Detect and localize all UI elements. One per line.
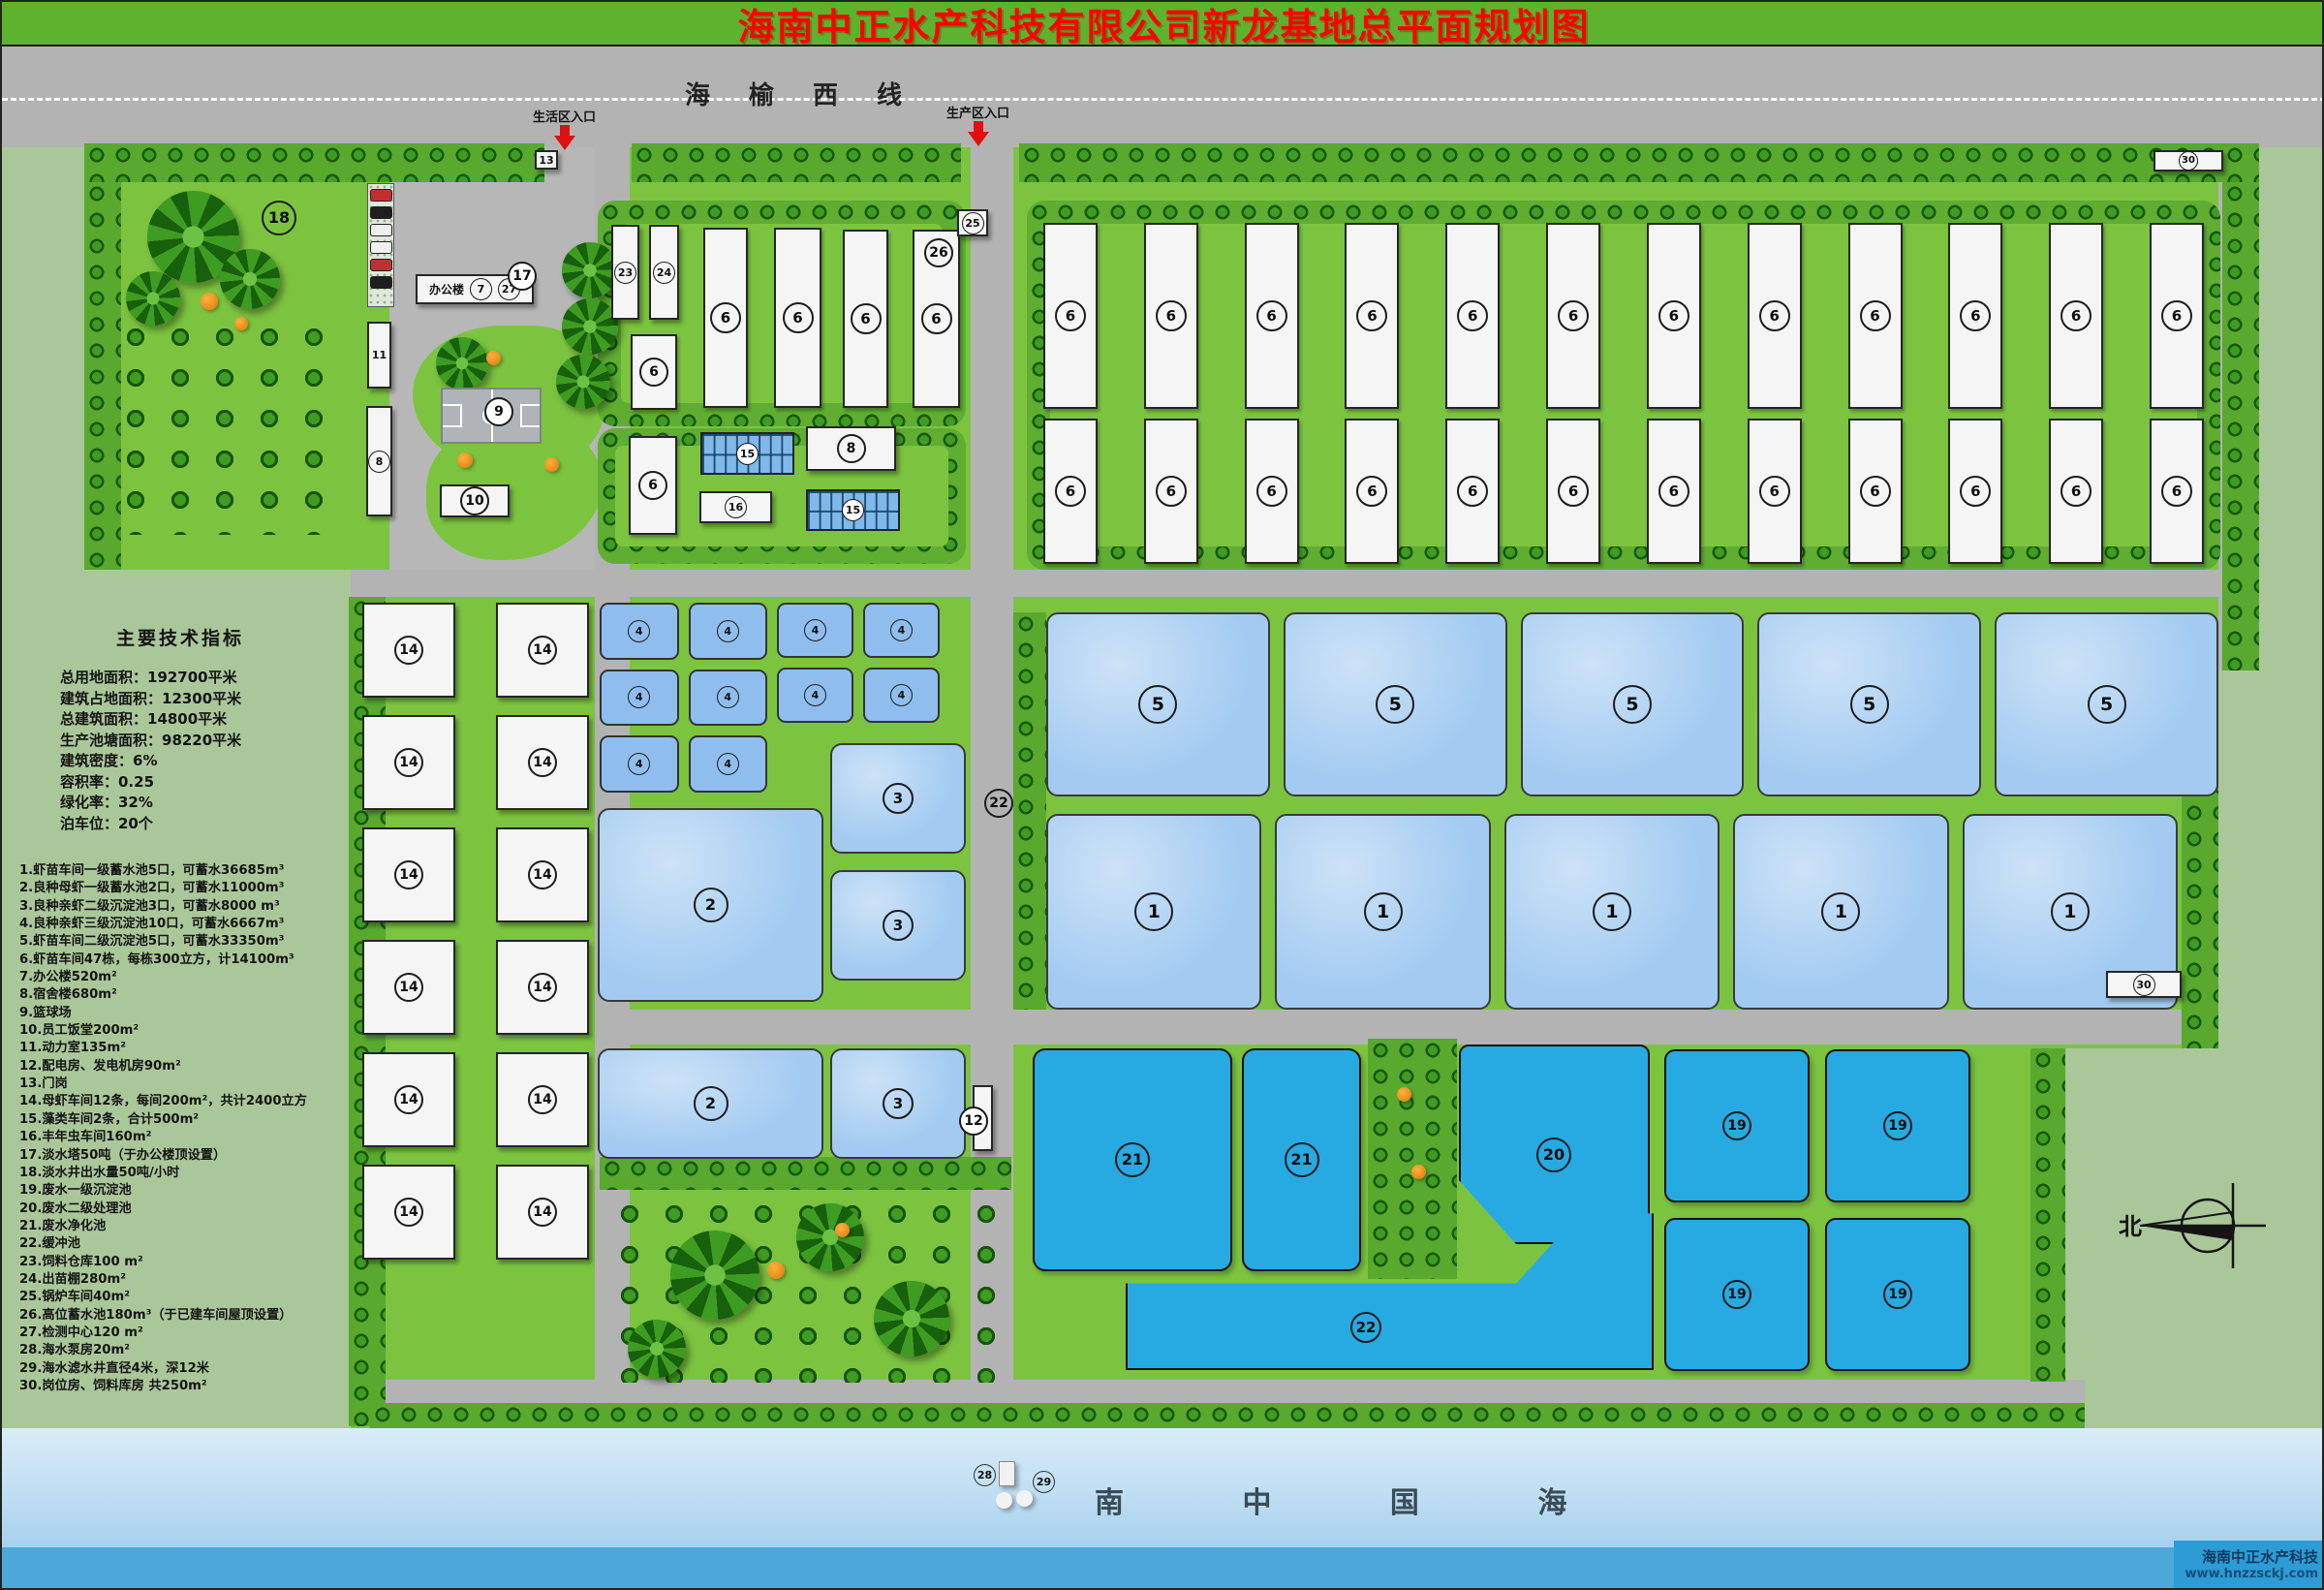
pond-label: 4 bbox=[804, 684, 826, 706]
gate-house-13: 13 bbox=[535, 150, 558, 170]
pond-label: 4 bbox=[890, 684, 913, 706]
pond-label: 5 bbox=[2088, 685, 2126, 724]
workshop-14-label: 14 bbox=[394, 973, 423, 1002]
flower-icon bbox=[544, 457, 559, 472]
workshop-14-label: 14 bbox=[528, 1085, 557, 1114]
shed-label: 6 bbox=[1256, 300, 1287, 331]
workshop-14-building: 14 bbox=[362, 715, 455, 810]
workshop-14-building: 14 bbox=[496, 940, 589, 1035]
sedimentation-pond-5: 5 bbox=[1046, 612, 1270, 796]
workshop-14-label: 14 bbox=[394, 748, 423, 777]
marker-8: 8 bbox=[368, 451, 390, 473]
palm-tree-icon bbox=[562, 242, 618, 298]
shed-building: 6 bbox=[1848, 223, 1903, 409]
down-arrow-icon bbox=[974, 121, 983, 132]
shed-label: 6 bbox=[2161, 300, 2192, 331]
shed-label: 6 bbox=[1558, 476, 1589, 507]
boiler-room-25: 25 bbox=[957, 209, 988, 236]
indicator-line: 生产池塘面积：98220平米 bbox=[60, 731, 244, 752]
legend-line: 21.废水净化池 bbox=[19, 1218, 307, 1235]
pond-label: 19 bbox=[1722, 1111, 1751, 1140]
marker-29-filter-wells: 29 bbox=[1033, 1471, 1055, 1493]
pond-label: 4 bbox=[717, 753, 739, 775]
filter-well-icon bbox=[1016, 1490, 1033, 1507]
storage-pond-2: 2 bbox=[598, 808, 823, 1002]
sedimentation-pond-4: 4 bbox=[600, 603, 679, 660]
shed-building: 6 bbox=[1647, 419, 1701, 564]
shed-label: 6 bbox=[2061, 300, 2092, 331]
shed-label: 6 bbox=[1759, 476, 1790, 507]
sedimentation-pond-4: 4 bbox=[777, 603, 853, 658]
pond-label: 1 bbox=[1821, 892, 1860, 931]
pond-grid-4b: 4444 bbox=[777, 603, 940, 723]
sedimentation-pond-5: 5 bbox=[1995, 612, 2218, 796]
shed-building: 6 bbox=[1445, 223, 1500, 409]
indicator-line: 总建筑面积：14800平米 bbox=[60, 709, 244, 731]
legend-line: 18.淡水井出水量50吨/小时 bbox=[19, 1165, 307, 1182]
legend-line: 1.虾苗车间一级蓄水池5口，可蓄水36685m³ bbox=[19, 862, 307, 880]
pond-label: 4 bbox=[804, 619, 826, 641]
shed-label: 6 bbox=[1658, 476, 1689, 507]
tree-strip-icon bbox=[1368, 1039, 1457, 1279]
palm-tree-icon bbox=[796, 1203, 864, 1271]
indicators-title: 主要技术指标 bbox=[116, 624, 244, 650]
legend-line: 23.饲料仓库100 m² bbox=[19, 1254, 307, 1271]
algae-pond-15: 15 bbox=[700, 432, 794, 475]
shed-label: 6 bbox=[1156, 476, 1187, 507]
shed-building: 6 bbox=[1546, 223, 1600, 409]
shed-building: 6 bbox=[1848, 419, 1903, 564]
indicator-line: 总用地面积：192700平米 bbox=[60, 668, 244, 689]
algae-pond-15: 15 bbox=[806, 489, 900, 531]
storage-pond-1: 1 bbox=[1046, 814, 1261, 1010]
pond-label: 5 bbox=[1376, 685, 1414, 724]
shrimp-shed-row-1: 666666666666 bbox=[1043, 223, 2204, 409]
legend-line: 14.母虾车间12条，每间200m²，共计2400立方 bbox=[19, 1093, 307, 1110]
shrimp-shed-row-2: 666666666666 bbox=[1043, 419, 2204, 564]
tree-row-icon bbox=[2222, 182, 2259, 670]
pond-label: 4 bbox=[628, 753, 650, 775]
power-house-11: 11 bbox=[367, 322, 391, 389]
shed-label: 6 bbox=[1960, 476, 1991, 507]
marker-30: 30 bbox=[2179, 151, 2198, 171]
pond-label: 4 bbox=[890, 619, 913, 641]
pond-label: 1 bbox=[1593, 892, 1631, 931]
tree-row-icon bbox=[2030, 1048, 2065, 1382]
legend-line: 9.篮球场 bbox=[19, 1005, 307, 1022]
seedling-shed-24: 24 bbox=[649, 225, 679, 320]
shed-building: 6 bbox=[1445, 419, 1500, 564]
pond-label: 19 bbox=[1883, 1111, 1912, 1140]
shed-building: 6 bbox=[1546, 419, 1600, 564]
shed-building: 6 bbox=[1647, 223, 1701, 409]
palm-tree-icon bbox=[220, 249, 280, 309]
palm-tree-icon bbox=[628, 1320, 686, 1378]
shed-label: 6 bbox=[710, 302, 741, 333]
sedimentation-pond-5: 5 bbox=[1521, 612, 1745, 796]
pond-label: 2 bbox=[694, 888, 728, 922]
sedimentation-pond-3: 3 bbox=[830, 870, 966, 981]
workshop-14-building: 14 bbox=[496, 1165, 589, 1260]
down-arrow-icon bbox=[968, 132, 989, 146]
sedimentation-pond-4: 4 bbox=[689, 735, 768, 793]
workshop-14-label: 14 bbox=[394, 860, 423, 889]
legend-line: 16.丰年虫车间160m² bbox=[19, 1129, 307, 1146]
legend-line: 30.岗位房、饲料库房 共250m² bbox=[19, 1378, 307, 1395]
car-icon bbox=[370, 276, 392, 289]
sedimentation-pond-5: 5 bbox=[1757, 612, 1981, 796]
shed-label: 6 bbox=[1558, 300, 1589, 331]
marker-28-pump-house: 28 bbox=[974, 1464, 996, 1486]
tree-row-icon bbox=[1019, 143, 2259, 182]
down-arrow-icon bbox=[554, 136, 575, 150]
shed-building: 6 bbox=[1345, 223, 1399, 409]
living-entrance-label: 生活区入口 bbox=[533, 107, 596, 125]
workshop-14-label: 14 bbox=[394, 636, 423, 665]
workshop-14-building: 14 bbox=[362, 827, 455, 922]
storage-pond-2: 2 bbox=[598, 1048, 823, 1159]
palm-tree-icon bbox=[556, 355, 610, 409]
marker-7-office: 7 bbox=[470, 278, 492, 300]
legend-line: 22.缓冲池 bbox=[19, 1235, 307, 1253]
shed-label: 6 bbox=[2161, 476, 2192, 507]
marker-15: 15 bbox=[842, 499, 864, 521]
shed-building: 6 bbox=[1245, 223, 1299, 409]
legend-line: 26.高位蓄水池180m³（于已建车间屋顶设置） bbox=[19, 1307, 307, 1325]
legend-line: 4.良种亲虾三级沉淀池10口，可蓄水6667m³ bbox=[19, 916, 307, 933]
shed-building: 6 bbox=[2150, 223, 2204, 409]
car-icon bbox=[370, 259, 392, 271]
pond-label: 5 bbox=[1138, 685, 1177, 724]
tree-row-icon bbox=[632, 143, 961, 182]
shed-label: 6 bbox=[783, 302, 814, 333]
pond-label: 3 bbox=[883, 783, 914, 814]
legend-line: 2.良种母虾一级蓄水池2口，可蓄水11000m³ bbox=[19, 880, 307, 897]
legend-line: 17.淡水塔50吨（于办公楼顶设置） bbox=[19, 1147, 307, 1165]
sedimentation-pond-4: 4 bbox=[863, 603, 940, 658]
marker-10: 10 bbox=[460, 486, 489, 515]
flower-icon bbox=[767, 1262, 785, 1279]
tree-row-icon bbox=[1013, 612, 1046, 1010]
flower-icon bbox=[201, 293, 218, 310]
living-entrance: 生活区入口 bbox=[533, 107, 596, 150]
shed-building: 6 bbox=[1245, 419, 1299, 564]
shed-building: 6 bbox=[2049, 223, 2103, 409]
north-label: 北 bbox=[2119, 1213, 2142, 1240]
storage-pond-1: 1 bbox=[1733, 814, 1948, 1010]
indicator-line: 容积率：0.25 bbox=[60, 772, 244, 794]
pond-label: 5 bbox=[1850, 685, 1889, 724]
pond-label: 1 bbox=[1134, 892, 1173, 931]
highway-road bbox=[2, 47, 2324, 147]
shed-label: 6 bbox=[1356, 300, 1387, 331]
shed-label: 6 bbox=[1960, 300, 1991, 331]
workshop-14-building: 14 bbox=[496, 715, 589, 810]
indicators-lines: 总用地面积：192700平米建筑占地面积：12300平米总建筑面积：14800平… bbox=[60, 668, 244, 834]
shed-building: 6 bbox=[1144, 223, 1198, 409]
shed-label: 6 bbox=[1356, 476, 1387, 507]
workshop-14-label: 14 bbox=[528, 636, 557, 665]
marker-25: 25 bbox=[962, 212, 984, 234]
sedimentation-pond-19: 19 bbox=[1825, 1218, 1970, 1371]
mother-shrimp-workshop-grid: 141414141414141414141414 bbox=[362, 603, 589, 1262]
sedimentation-pond-19: 19 bbox=[1664, 1218, 1810, 1371]
sedimentation-pond-4: 4 bbox=[863, 668, 940, 723]
legend-line: 8.宿舍楼680m² bbox=[19, 986, 307, 1004]
sedimentation-pond-3: 3 bbox=[830, 743, 966, 854]
car-icon bbox=[370, 224, 392, 236]
flower-icon bbox=[486, 351, 501, 365]
pond-label: 21 bbox=[1285, 1142, 1319, 1177]
brand-name: 海南中正水产科技 bbox=[2174, 1546, 2318, 1567]
legend-line: 6.虾苗车间47栋，每栋300立方，计14100m³ bbox=[19, 951, 307, 969]
pond-label: 3 bbox=[883, 1088, 914, 1119]
down-arrow-icon bbox=[560, 125, 570, 136]
legend-line: 15.藻类车间2条，合计500m² bbox=[19, 1111, 307, 1129]
legend-line: 20.废水二级处理池 bbox=[19, 1200, 307, 1218]
storage-pond-1: 1 bbox=[1504, 814, 1720, 1010]
purification-pond-21: 21 bbox=[1033, 1048, 1232, 1271]
indicator-line: 建筑密度：6% bbox=[60, 751, 244, 772]
sea-band bbox=[2, 1547, 2324, 1590]
pond-label: 4 bbox=[628, 686, 650, 708]
flower-icon bbox=[457, 452, 473, 468]
indicators-panel: 主要技术指标 总用地面积：192700平米建筑占地面积：12300平米总建筑面积… bbox=[60, 624, 244, 834]
shed-label: 6 bbox=[1759, 300, 1790, 331]
shed-label: 6 bbox=[1457, 476, 1488, 507]
shed-label: 6 bbox=[851, 303, 882, 334]
workshop-14-building: 14 bbox=[496, 827, 589, 922]
legend-line: 27.检测中心120 m² bbox=[19, 1325, 307, 1342]
shed-label: 6 bbox=[1658, 300, 1689, 331]
shed-building: 6 bbox=[1144, 419, 1198, 564]
sedimentation-pond-3: 3 bbox=[830, 1048, 966, 1159]
car-icon bbox=[370, 189, 392, 202]
workshop-14-building: 14 bbox=[362, 1165, 455, 1260]
marker-8: 8 bbox=[837, 434, 866, 463]
brand-site: www.hnzzsckj.com bbox=[2174, 1567, 2318, 1581]
sedimentation-pond-4: 4 bbox=[600, 735, 679, 793]
flower-icon bbox=[234, 317, 248, 330]
pond-label: 4 bbox=[717, 686, 739, 708]
sedimentation-pond-4: 4 bbox=[689, 670, 768, 727]
flower-icon bbox=[835, 1223, 850, 1237]
pond-label: 5 bbox=[1613, 685, 1652, 724]
shed-building: 6 bbox=[2150, 419, 2204, 564]
sedimentation-pond-5: 5 bbox=[1284, 612, 1507, 796]
road-horizontal-1 bbox=[351, 570, 2259, 597]
shed-building: 6 bbox=[1748, 419, 1802, 564]
shed-label: 6 bbox=[1860, 476, 1891, 507]
legend-line: 12.配电房、发电机房90m² bbox=[19, 1058, 307, 1076]
pond-label: 2 bbox=[694, 1086, 728, 1121]
shed-building: 6 bbox=[1948, 419, 2002, 564]
production-entrance-label: 生产区入口 bbox=[946, 103, 1009, 121]
sedimentation-pond-19: 19 bbox=[1825, 1049, 1970, 1202]
shed-building: 6 bbox=[1043, 419, 1098, 564]
brine-shrimp-workshop-16: 16 bbox=[699, 491, 772, 523]
pond-label: 19 bbox=[1883, 1280, 1912, 1309]
workshop-14-label: 14 bbox=[394, 1198, 423, 1227]
sedimentation-pond-4: 4 bbox=[689, 603, 768, 660]
dormitory-8: 8 bbox=[366, 406, 392, 516]
sea-area: 南 中 国 海 28 29 海南中正水产科技 www.hnzzsckj.com bbox=[2, 1428, 2324, 1590]
garden-bushes-icon bbox=[118, 322, 331, 535]
shed-label: 6 bbox=[2061, 476, 2092, 507]
shed-label: 6 bbox=[1457, 300, 1488, 331]
marker-24: 24 bbox=[653, 262, 675, 284]
office-label: 办公楼 bbox=[429, 281, 464, 297]
pond-label-20: 20 bbox=[1536, 1138, 1571, 1172]
shed-building: 6 bbox=[1043, 223, 1098, 409]
marker-22-buffer: 22 bbox=[984, 789, 1013, 818]
marker-9-basketball: 9 bbox=[484, 397, 513, 426]
car-icon bbox=[370, 206, 392, 219]
marker-17-water-tower: 17 bbox=[508, 262, 537, 291]
workshop-14-building: 14 bbox=[362, 1052, 455, 1147]
shed-label: 6 bbox=[638, 471, 667, 500]
court-key bbox=[520, 404, 540, 427]
pond-grid-4a: 444444 bbox=[600, 603, 767, 793]
marker-26-elevated-tank: 26 bbox=[924, 238, 953, 267]
shed-building: 6 bbox=[703, 228, 748, 408]
shed-label: 6 bbox=[1156, 300, 1187, 331]
site-plan-map: 18 13 生活区入口 生产区入口 办公楼 7 27 17 11 8 bbox=[0, 0, 2324, 1590]
shed-building: 6 bbox=[1345, 419, 1399, 564]
flower-icon bbox=[1397, 1087, 1411, 1102]
workshop-14-label: 14 bbox=[528, 973, 557, 1002]
feed-warehouse-23: 23 bbox=[611, 225, 639, 320]
marker-30: 30 bbox=[2133, 974, 2155, 996]
pond-label: 4 bbox=[717, 620, 739, 642]
pond-label: 21 bbox=[1115, 1142, 1150, 1177]
workshop-14-building: 14 bbox=[496, 603, 589, 698]
purification-pond-21: 21 bbox=[1242, 1048, 1361, 1271]
marker-16: 16 bbox=[725, 496, 747, 518]
shed-label: 6 bbox=[1055, 300, 1086, 331]
shed-label: 6 bbox=[1860, 300, 1891, 331]
workshop-14-label: 14 bbox=[528, 748, 557, 777]
marker-15: 15 bbox=[736, 443, 759, 465]
indicator-line: 泊车位：20个 bbox=[60, 814, 244, 835]
shed-building: 6 bbox=[629, 436, 677, 535]
pond-label: 1 bbox=[1364, 892, 1403, 931]
flower-icon bbox=[1411, 1165, 1426, 1179]
pond-label: 1 bbox=[2051, 892, 2090, 931]
logo-box: 海南中正水产科技 www.hnzzsckj.com bbox=[2174, 1541, 2324, 1590]
shed-label: 6 bbox=[1256, 476, 1287, 507]
compass: 北 bbox=[2119, 1169, 2274, 1286]
workshop-14-label: 14 bbox=[528, 860, 557, 889]
storage-pond-1: 1 bbox=[1275, 814, 1490, 1010]
shed-label: 6 bbox=[921, 303, 952, 334]
palm-tree-icon bbox=[874, 1281, 949, 1356]
highway-centerline bbox=[2, 98, 2324, 101]
marker-18-freshwater-well: 18 bbox=[262, 201, 296, 235]
parking-lot bbox=[367, 183, 394, 307]
tree-row-icon bbox=[370, 1403, 2085, 1430]
compass-icon: 北 bbox=[2119, 1169, 2274, 1286]
shed-building: 6 bbox=[774, 228, 821, 408]
pond-grid-19: 19191919 bbox=[1664, 1049, 1970, 1371]
shed-label: 6 bbox=[639, 358, 668, 387]
palm-tree-icon bbox=[670, 1231, 759, 1320]
dormitory-8b: 8 bbox=[806, 426, 896, 471]
tree-row-icon bbox=[84, 182, 121, 570]
workshop-14-building: 14 bbox=[362, 603, 455, 698]
pond-row-5: 55555 bbox=[1046, 612, 2218, 796]
sea-name: 南 中 国 海 bbox=[1095, 1479, 1621, 1521]
indicator-line: 绿化率：32% bbox=[60, 793, 244, 814]
production-entrance: 生产区入口 bbox=[946, 103, 1009, 146]
tree-row-icon bbox=[600, 1157, 1011, 1190]
legend-line: 25.锅炉车间40m² bbox=[19, 1289, 307, 1306]
legend-line: 3.良种亲虾二级沉淀池3口，可蓄水8000 m³ bbox=[19, 898, 307, 916]
legend-line: 5.虾苗车间二级沉淀池5口，可蓄水33350m³ bbox=[19, 933, 307, 951]
workshop-14-label: 14 bbox=[528, 1198, 557, 1227]
pond-label: 19 bbox=[1722, 1280, 1751, 1309]
canteen-10: 10 bbox=[440, 484, 510, 517]
legend-line: 24.出苗棚280m² bbox=[19, 1271, 307, 1289]
sedimentation-pond-4: 4 bbox=[600, 670, 679, 727]
workshop-14-building: 14 bbox=[362, 940, 455, 1035]
legend-line: 29.海水滤水井直径4米，深12米 bbox=[19, 1360, 307, 1378]
legend-panel: 1.虾苗车间一级蓄水池5口，可蓄水36685m³2.良种母虾一级蓄水池2口，可蓄… bbox=[19, 862, 307, 1395]
shed-label: 6 bbox=[1055, 476, 1086, 507]
filter-well-icon bbox=[996, 1492, 1012, 1509]
court-key bbox=[443, 404, 462, 427]
legend-line: 19.废水一级沉淀池 bbox=[19, 1182, 307, 1200]
shed-building: 6 bbox=[631, 334, 677, 410]
highway-name: 海榆西线 bbox=[685, 76, 941, 111]
page-title: 海南中正水产科技有限公司新龙基地总平面规划图 bbox=[737, 0, 1590, 50]
gate-label: 13 bbox=[538, 151, 555, 169]
sedimentation-pond-4: 4 bbox=[777, 668, 853, 723]
pond-label: 3 bbox=[883, 910, 914, 941]
shed-building: 6 bbox=[1748, 223, 1802, 409]
pump-house-icon bbox=[999, 1461, 1015, 1486]
workshop-14-label: 14 bbox=[394, 1085, 423, 1114]
shed-building: 6 bbox=[2049, 419, 2103, 564]
workshop-14-building: 14 bbox=[496, 1052, 589, 1147]
pond-row-1: 11111 bbox=[1046, 814, 2178, 1010]
legend-line: 10.员工饭堂200m² bbox=[19, 1022, 307, 1040]
marker-11: 11 bbox=[371, 347, 388, 364]
legend-line: 11.动力室135m² bbox=[19, 1040, 307, 1057]
palm-tree-icon bbox=[126, 271, 180, 326]
legend-line: 13.门岗 bbox=[19, 1076, 307, 1093]
shed-building: 6 bbox=[1948, 223, 2002, 409]
legend-line: 7.办公楼520m² bbox=[19, 969, 307, 986]
marker-23: 23 bbox=[614, 262, 636, 284]
palm-tree-icon bbox=[562, 298, 618, 355]
sedimentation-pond-19: 19 bbox=[1664, 1049, 1810, 1202]
tree-row-icon bbox=[84, 143, 544, 182]
pond-label: 4 bbox=[628, 620, 650, 642]
legend-line: 28.海水泵房20m² bbox=[19, 1342, 307, 1359]
shed-building: 6 bbox=[843, 230, 888, 408]
indicator-line: 建筑占地面积：12300平米 bbox=[60, 689, 244, 710]
title-banner: 海南中正水产科技有限公司新龙基地总平面规划图 bbox=[2, 2, 2324, 47]
pond-label-22: 22 bbox=[1350, 1312, 1381, 1343]
palm-tree-icon bbox=[436, 337, 488, 390]
car-icon bbox=[370, 241, 392, 254]
marker-12: 12 bbox=[959, 1107, 988, 1136]
storage-building-30: 30 bbox=[2154, 150, 2223, 171]
storage-building-30b: 30 bbox=[2106, 971, 2182, 998]
